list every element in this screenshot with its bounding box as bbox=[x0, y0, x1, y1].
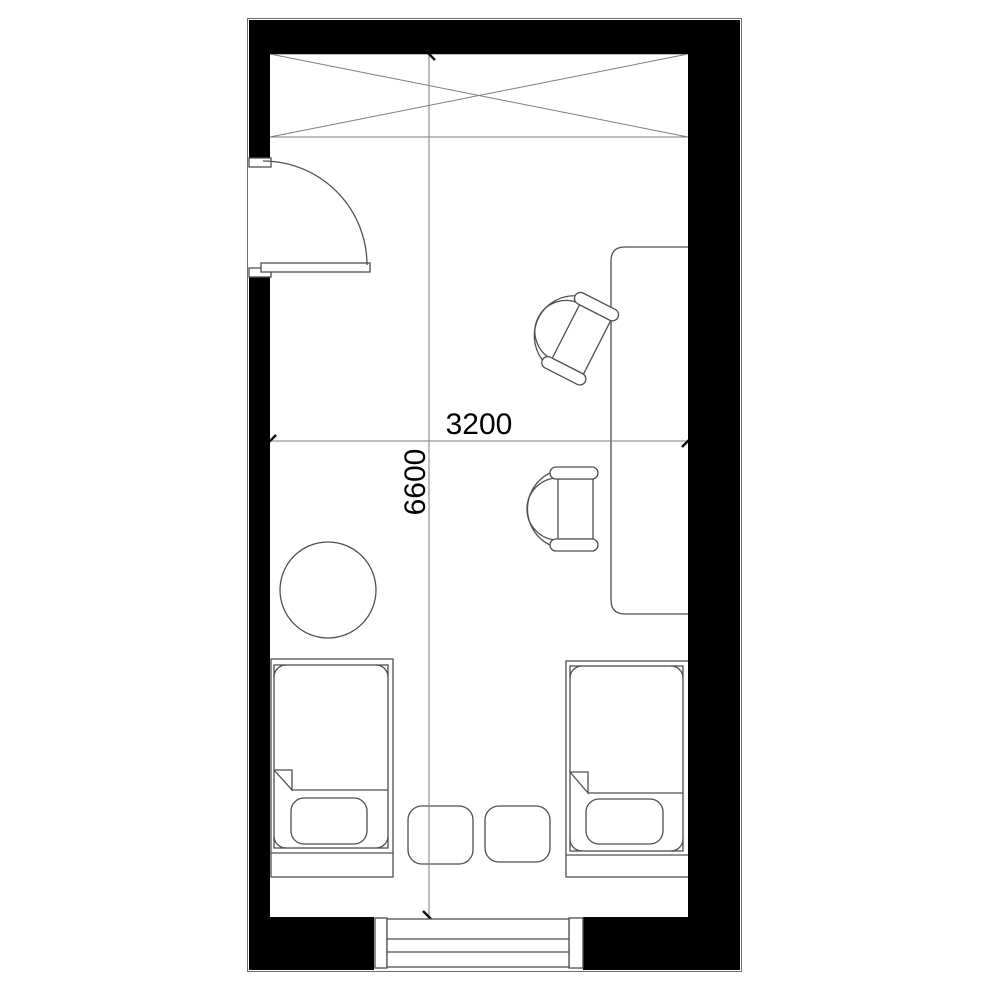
bed-right bbox=[566, 661, 689, 877]
floor-plan-canvas: 3200 6600 bbox=[0, 0, 1000, 1000]
wall-bottom-left bbox=[249, 917, 374, 970]
door-jamb-upper bbox=[249, 158, 271, 167]
bed-left-pillow bbox=[291, 798, 367, 844]
round-table bbox=[280, 542, 376, 638]
dim-label-vertical: 6600 bbox=[399, 449, 432, 516]
window bbox=[375, 918, 583, 968]
wall-bottom-right bbox=[583, 917, 740, 970]
window-jamb-left bbox=[375, 918, 387, 968]
stool-left bbox=[408, 806, 473, 864]
wall-top bbox=[249, 20, 740, 54]
floor-plan-page: 3200 6600 bbox=[0, 0, 1000, 1000]
window-jamb-right bbox=[569, 918, 583, 968]
dim-label-horizontal: 3200 bbox=[446, 408, 513, 441]
bed-right-pillow bbox=[586, 799, 663, 844]
door-leaf bbox=[261, 263, 370, 272]
stool-right bbox=[485, 806, 550, 862]
wall-left-lower bbox=[249, 277, 270, 917]
window-frame bbox=[387, 919, 569, 967]
desk bbox=[611, 247, 689, 614]
bed-left bbox=[271, 659, 393, 877]
wall-left-upper bbox=[249, 54, 270, 159]
wall-right bbox=[688, 20, 740, 970]
